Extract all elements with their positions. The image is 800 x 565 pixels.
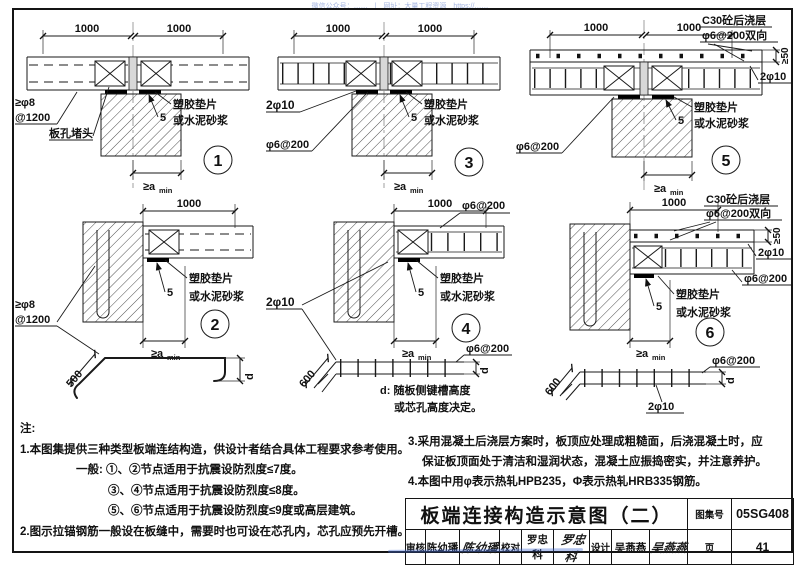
dim-label: 1000: [677, 22, 701, 34]
detail-1: 1000 1000 ≥φ8 @1200 板孔堵头 塑胶垫片 或水泥砂浆 5 ≥a: [13, 10, 263, 196]
notes-heading: 注:: [20, 419, 412, 440]
anchor-bar-spacing: @1200: [15, 314, 50, 326]
shim-thickness: 5: [418, 287, 424, 299]
joint-grout: [129, 57, 137, 90]
detail-number: 2: [211, 317, 220, 334]
note-line: 保证板顶面处于清洁和湿润状态，混凝土应振捣密实，并注意养护。: [422, 452, 794, 472]
mesh-label: φ6@200: [266, 139, 309, 151]
shim-pad: [634, 274, 654, 278]
d-note: d: 随板侧键槽高度: [380, 383, 471, 397]
hole-plug-label: 板孔堵头: [49, 126, 93, 140]
reviewer-label: 审核: [406, 530, 426, 565]
shim-label2: 或水泥砂浆: [189, 289, 245, 303]
topping-thickness-label: ≥50: [780, 47, 791, 64]
keyway-x-box: [346, 61, 376, 86]
notes-right: 3.采用混凝土后浇层方案时，板顶应处理成粗糙面，后浇混凝土时，应 保证板顶面处于…: [408, 432, 794, 492]
note-line: 4.本图中用φ表示热轧HPB235，Φ表示热轧HRB335钢筋。: [408, 472, 794, 492]
amin-sub: min: [410, 186, 424, 195]
dim-label: 1000: [75, 23, 99, 35]
shim-thickness: 5: [160, 112, 166, 124]
amin-sub: min: [652, 353, 666, 362]
dim-label: 1000: [662, 197, 686, 209]
title-block: 板端连接构造示意图（二） 图集号 05SG408 审核 陈幼璠 陈幼璠 校对 罗…: [405, 498, 794, 565]
shim-pad: [105, 90, 127, 94]
mesh-label: φ6@200: [712, 355, 755, 367]
shim-label: 塑胶垫片: [440, 271, 484, 285]
shim-thickness: 5: [411, 112, 417, 124]
shim-label2: 或水泥砂浆: [676, 305, 732, 319]
dim-label: 1000: [418, 23, 442, 35]
dim-label: 1000: [584, 22, 608, 34]
notes-left: 注: 1.本图集提供三种类型板端连结构造，供设计者结合具体工程要求参考使用。 一…: [20, 419, 412, 542]
keyway-x-box: [392, 61, 422, 86]
shim-thickness: 5: [678, 115, 684, 127]
shim-label: 塑胶垫片: [189, 271, 233, 285]
page-label: 页: [688, 530, 732, 565]
detail-3: 1000 1000 2φ10 φ6@200 塑胶垫片 或水泥砂浆 5 ≥a mi…: [264, 10, 514, 196]
amin-label: ≥a: [654, 183, 667, 195]
page-number: 41: [732, 530, 794, 565]
anchor-bar-spacing: @1200: [15, 112, 50, 124]
keyway-x-box: [652, 66, 682, 90]
mesh-label: φ6@200: [516, 141, 559, 153]
detail-4: 1000 φ6@200 塑胶垫片 或水泥砂浆 5 2φ10 ≥a min 4: [264, 196, 514, 425]
wall-hatch: [334, 222, 394, 322]
detail-number: 6: [706, 325, 715, 342]
bar-depth-label: d: [244, 373, 256, 380]
dim-label: 1000: [167, 23, 191, 35]
amin-label: ≥a: [636, 348, 649, 360]
bar-length-label: 500: [64, 368, 85, 390]
atlas-number-label: 图集号: [688, 499, 732, 530]
shim-label: 塑胶垫片: [694, 100, 738, 114]
slab-mesh-label: φ6@200: [744, 273, 787, 285]
wall-hatch: [570, 224, 630, 330]
dim-label: 1000: [326, 23, 350, 35]
keyway-x-box: [141, 61, 171, 86]
topping-label: C30砼后浇层: [702, 13, 766, 27]
keyway-x-box: [604, 66, 634, 90]
detail-number: 3: [465, 155, 474, 172]
topping-mesh-label: φ6@200双向: [706, 206, 771, 220]
amin-sub: min: [418, 353, 432, 362]
note-line: ③、④节点适用于抗震设防烈度≤8度。: [108, 481, 412, 502]
slab-mesh-label: φ6@200: [462, 200, 505, 212]
tie-bars-label: 2φ10: [266, 295, 295, 309]
tie-bars-label: 2φ10: [266, 98, 295, 112]
reviewer-name: 陈幼璠: [426, 530, 460, 565]
keyway-x-box: [149, 230, 179, 254]
amin-label: ≥a: [394, 181, 407, 193]
mesh-bars-label: 2φ10: [648, 401, 674, 413]
amin-label: ≥a: [402, 348, 415, 360]
designer-name: 吴燕燕: [612, 530, 650, 565]
drawing-title: 板端连接构造示意图（二）: [406, 499, 688, 530]
detail-number: 5: [722, 153, 731, 170]
detail-6: C30砼后浇层 φ6@200双向 1000 ≥50 2φ10 φ6@200: [514, 196, 792, 425]
detail-2: 1000 塑胶垫片 或水泥砂浆 5 ≥φ8 @1200 ≥a min 2: [13, 196, 263, 425]
designer-signature: 吴燕燕: [647, 530, 690, 565]
topping-mesh-label: φ6@200双向: [702, 28, 767, 42]
note-line: 一般: ①、②节点适用于抗震设防烈度≤7度。: [76, 460, 412, 481]
checker-label: 校对: [500, 530, 522, 565]
detail-5: 1000 1000 C30砼后浇层 φ6@200双向 ≥50 2φ10 φ6@2…: [514, 10, 792, 196]
reviewer-signature: 陈幼璠: [457, 530, 502, 565]
amin-sub: min: [159, 186, 173, 195]
anchor-bar-label: ≥φ8: [15, 299, 35, 311]
atlas-number: 05SG408: [732, 499, 794, 530]
shim-label: 塑胶垫片: [676, 287, 720, 301]
shim-thickness: 5: [656, 301, 662, 313]
d-note2: 或芯孔高度决定。: [394, 400, 482, 414]
atlas-page: 微信公众号：…… | 网址：大量工程资源 https://…… 1000 100…: [0, 0, 800, 563]
shim-label2: 或水泥砂浆: [440, 289, 496, 303]
keyway-x-box: [95, 61, 125, 86]
checker-signature: 罗忠科: [551, 530, 592, 565]
keyway-x-box: [634, 246, 662, 268]
note-line: 1.本图集提供三种类型板端连结构造，供设计者结合具体工程要求参考使用。: [20, 440, 412, 461]
topping-label: C30砼后浇层: [706, 192, 770, 206]
shim-pad: [139, 90, 161, 94]
mesh-depth-label: d: [725, 377, 737, 384]
designer-label: 设计: [590, 530, 612, 565]
shim-label2: 或水泥砂浆: [694, 116, 750, 130]
anchor-bar-label: ≥φ8: [15, 97, 35, 109]
mesh-depth-label: d: [479, 367, 491, 374]
note-line: ⑤、⑥节点适用于抗震设防烈度≤9度或高层建筑。: [108, 501, 412, 522]
tie-bar-shape: [74, 358, 225, 398]
dim-label: 1000: [428, 198, 452, 210]
shim-thickness: 5: [167, 287, 173, 299]
note-line: 2.图示拉锚钢筋一般设在板缝中，需要时也可设在芯孔内，芯孔应预先开槽。: [20, 522, 412, 543]
keyway-x-box: [398, 230, 428, 254]
support-wall-hatch: [352, 94, 432, 156]
mesh-label: φ6@200: [466, 343, 509, 355]
detail-number: 4: [462, 321, 471, 338]
support-wall-hatch: [612, 99, 692, 157]
checker-name: 罗忠科: [522, 530, 554, 565]
dim-label: 1000: [177, 198, 201, 210]
amin-label: ≥a: [143, 181, 156, 193]
shim-label: 塑胶垫片: [173, 97, 217, 111]
tie-bars-label: 2φ10: [760, 71, 786, 83]
shim-label: 塑胶垫片: [424, 97, 468, 111]
wall-hatch: [83, 222, 143, 322]
shim-label2: 或水泥砂浆: [173, 113, 229, 127]
detail-number: 1: [214, 153, 223, 170]
tie-bars-label: 2φ10: [758, 247, 784, 259]
topping-thickness-label: ≥50: [772, 227, 783, 244]
note-line: 3.采用混凝土后浇层方案时，板顶应处理成粗糙面，后浇混凝土时，应: [408, 432, 794, 452]
support-wall-hatch: [101, 94, 181, 156]
shim-label2: 或水泥砂浆: [424, 113, 480, 127]
